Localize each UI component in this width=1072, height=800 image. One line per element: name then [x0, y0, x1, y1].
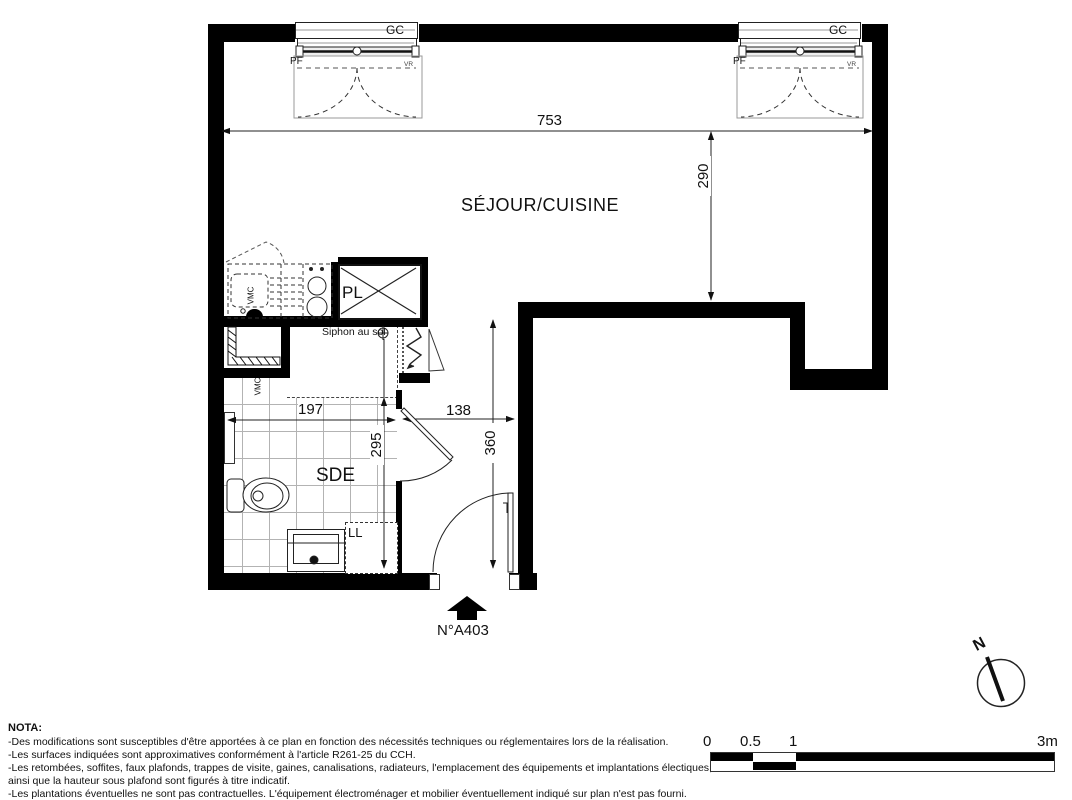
- entry-door: [433, 493, 513, 572]
- north-compass: [978, 657, 1025, 707]
- dim-hall-width: 138: [446, 404, 471, 418]
- vanity-details: [287, 543, 344, 564]
- plan-linework: [0, 0, 1072, 800]
- window2: [737, 30, 863, 118]
- scale-seg: [796, 762, 1054, 770]
- scale-seg: [711, 762, 753, 770]
- scale-seg: [796, 753, 1054, 761]
- dim-sde-depth: 295: [370, 425, 384, 465]
- nota-line-2: -Les surfaces indiquées sont approximati…: [8, 749, 416, 762]
- dim-hall-depth: 360: [484, 423, 498, 463]
- window2-gc-label: GC: [829, 23, 847, 37]
- duct-hatch: [228, 327, 280, 365]
- room-label-sejour: SÉJOUR/CUISINE: [461, 195, 619, 216]
- nota-line-1: -Des modifications sont susceptibles d'ê…: [8, 736, 668, 749]
- dim-sejour-depth: 290: [697, 156, 711, 196]
- nota-line-5: -Les plantations éventuelles ne sont pas…: [8, 788, 687, 800]
- scale-label-0: 0: [703, 733, 711, 750]
- washer-label-ll: LL: [348, 525, 362, 540]
- radiator-symbol: [407, 328, 421, 368]
- closet-label-pl: PL: [342, 283, 363, 303]
- scale-label-3m: 3m: [1037, 733, 1058, 750]
- scale-label-05: 0.5: [740, 733, 761, 750]
- window1-pf-label: PF: [290, 56, 303, 67]
- entry-arrow: [447, 596, 487, 620]
- floor-drain-label: Siphon au sol: [322, 326, 386, 338]
- radiator-flap: [429, 329, 444, 371]
- nota-title: NOTA:: [8, 722, 42, 734]
- window1-vr-label: VR: [404, 61, 413, 68]
- vent-label-kitchen: VMC: [247, 284, 256, 308]
- scale-seg: [753, 753, 796, 761]
- room-label-sde: SDE: [316, 465, 355, 487]
- window1-gc-label: GC: [386, 23, 404, 37]
- scale-bar: [710, 752, 1055, 772]
- toilet: [227, 478, 289, 512]
- floor-plan: SÉJOUR/CUISINE SDE PL LL Siphon au sol V…: [0, 0, 1072, 800]
- cabinet-swing-dashed: [226, 242, 284, 263]
- scale-label-1: 1: [789, 733, 797, 750]
- nota-line-4: ainsi que la hauteur sous plafond sont f…: [8, 775, 290, 788]
- scale-seg: [711, 753, 753, 761]
- kitchen-counter: [228, 264, 332, 318]
- vent-label-closet: VMC: [254, 375, 263, 399]
- nota-line-3: -Les retombées, soffites, faux plafonds,…: [8, 762, 712, 775]
- window1: [294, 30, 422, 118]
- window2-vr-label: VR: [847, 61, 856, 68]
- window2-pf-label: PF: [733, 56, 746, 67]
- unit-number-label: N°A403: [437, 622, 489, 639]
- scale-seg: [753, 762, 796, 770]
- dim-sde-width: 197: [298, 403, 323, 417]
- dim-sejour-width: 753: [537, 114, 562, 128]
